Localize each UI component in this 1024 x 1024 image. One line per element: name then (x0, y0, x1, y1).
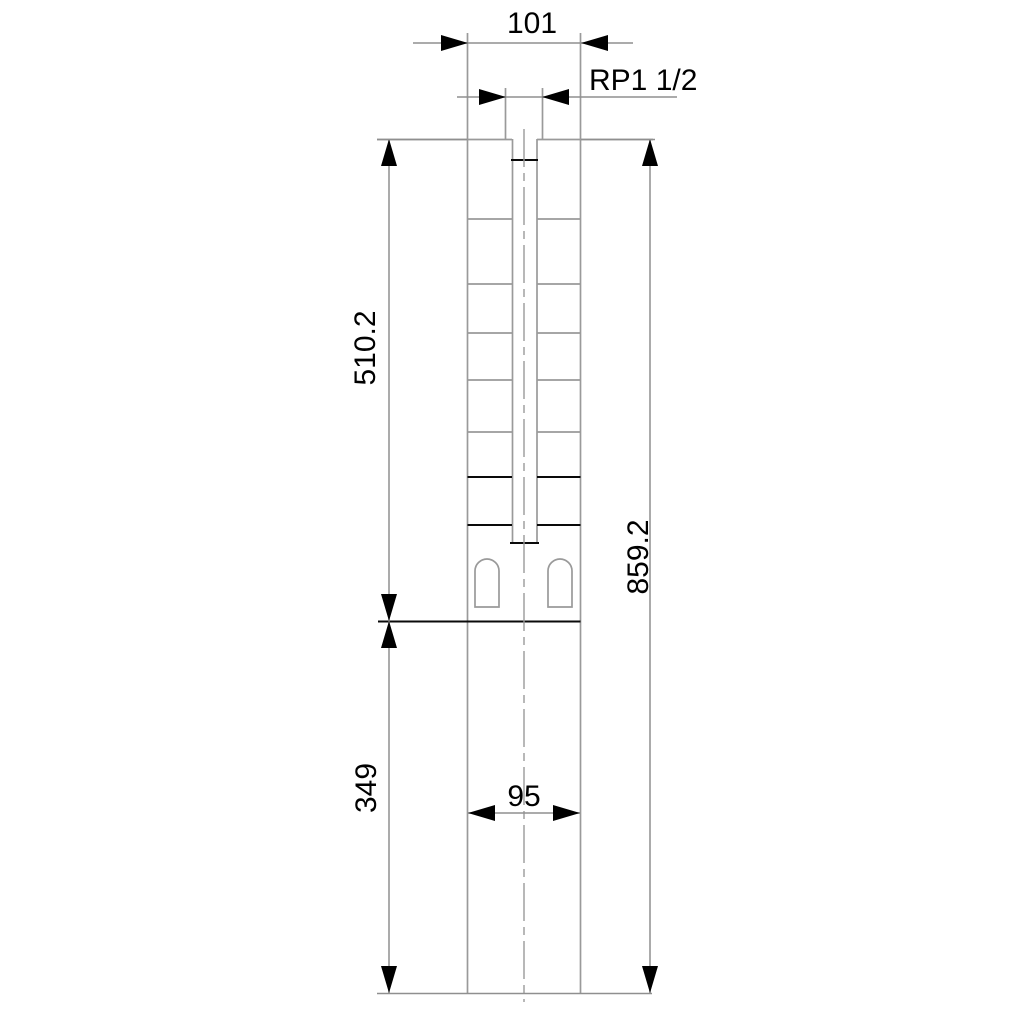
extension-lines (377, 140, 655, 994)
technical-drawing-canvas: 101 RP1 1/2 510.2 349 859.2 95 (0, 0, 1024, 1024)
arrowhead-down-icon (381, 966, 397, 993)
pump-dimension-drawing: 101 RP1 1/2 510.2 349 859.2 95 (0, 0, 1024, 1024)
dimension-label-upper-height: 510.2 (349, 310, 382, 385)
arrowhead-right-icon (479, 89, 506, 105)
dimension-thread: RP1 1/2 (457, 64, 697, 105)
arrowhead-up-icon (642, 139, 658, 166)
arrowhead-left-icon (581, 35, 608, 51)
arrowhead-up-icon (381, 621, 397, 648)
arrowhead-left-icon (468, 805, 495, 821)
inlet-slot-right (548, 559, 572, 607)
arrowhead-right-icon (441, 35, 468, 51)
pump-body (377, 33, 653, 1002)
arrowhead-right-icon (553, 805, 580, 821)
arrowhead-down-icon (381, 594, 397, 621)
dimension-label-thread: RP1 1/2 (589, 64, 697, 97)
dimension-top-width: 101 (413, 7, 633, 51)
dimension-label-lower-height: 349 (350, 763, 383, 813)
arrowhead-down-icon (642, 966, 658, 993)
arrowhead-left-icon (542, 89, 569, 105)
arrowhead-up-icon (381, 139, 397, 166)
dimension-label-top-width: 101 (507, 7, 557, 40)
dimension-label-bottom-width: 95 (507, 780, 540, 813)
dimension-total-height: 859.2 (622, 139, 658, 993)
dimension-label-total-height: 859.2 (622, 519, 655, 594)
dimension-left-column: 510.2 349 (349, 139, 397, 993)
inlet-slot-left (475, 559, 499, 607)
